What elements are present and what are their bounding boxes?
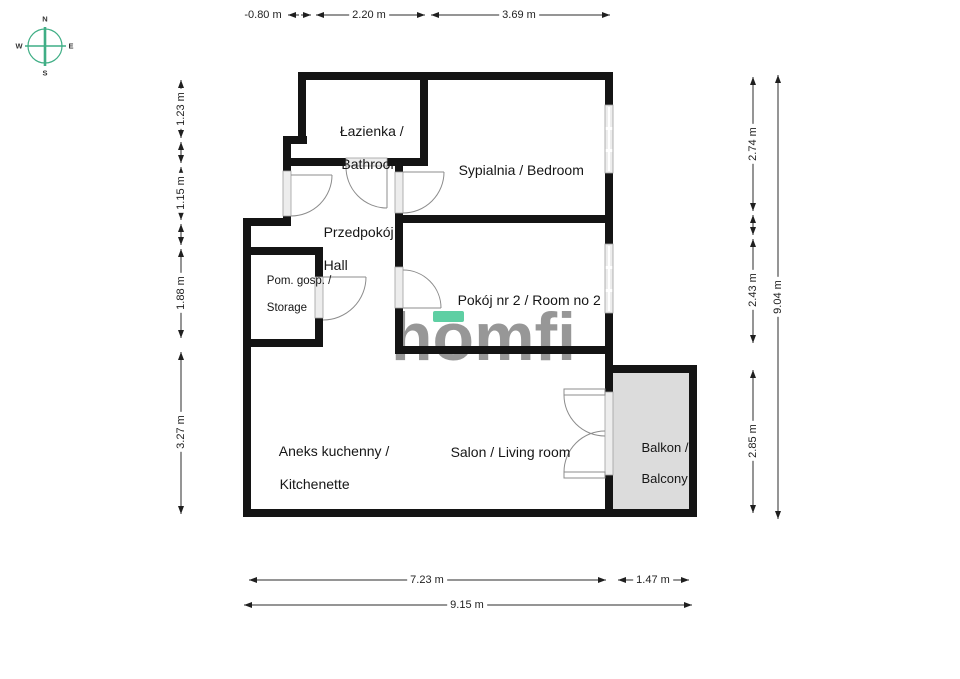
wall-segment	[243, 218, 251, 517]
wall-segment	[395, 215, 613, 223]
dim-left-bathroom: 1.23 m	[175, 89, 187, 129]
dim-top-bathroom: 2.20 m	[349, 9, 389, 21]
door-leaf	[564, 389, 605, 395]
wall-segment	[607, 365, 697, 373]
dim-left-storage: 1.88 m	[175, 273, 187, 313]
window	[605, 105, 613, 173]
dim-right-room2: 2.43 m	[747, 270, 759, 310]
dim-right-total: 9.04 m	[772, 277, 784, 317]
dim-right-balcony: 2.85 m	[747, 421, 759, 461]
room-label-kitchenette: Aneks kuchenny / Kitchenette	[264, 426, 389, 510]
compass-east-label: E	[68, 42, 73, 51]
wall-segment	[605, 313, 613, 392]
compass-south-label: S	[42, 69, 47, 78]
wall-segment	[605, 173, 613, 244]
dim-left-entry: 1.15 m	[175, 173, 187, 213]
wall-segment	[243, 339, 323, 347]
door-frame	[283, 171, 291, 216]
wall-segment	[283, 136, 291, 172]
floor-plan-drawing	[0, 0, 960, 679]
wall-segment	[605, 72, 613, 105]
dim-bottom-balcony: 1.47 m	[633, 574, 673, 586]
room-label-bedroom: Sypialnia / Bedroom	[443, 145, 584, 195]
dim-bottom-total: 9.15 m	[447, 599, 487, 611]
room-label-room2: Pokój nr 2 / Room no 2	[442, 275, 601, 325]
wall-segment	[605, 475, 613, 511]
dim-top-offset: -0.80 m	[241, 9, 284, 21]
door-swing-arc	[403, 270, 441, 308]
wall-segment	[689, 365, 697, 517]
wall-segment	[395, 346, 613, 354]
dim-top-bedroom: 3.69 m	[499, 9, 539, 21]
room-label-bathroom: Łazienka / Bathroom	[300, 106, 428, 190]
dim-bottom-living: 7.23 m	[407, 574, 447, 586]
room-label-living: Salon / Living room	[435, 427, 570, 477]
compass-north-label: N	[42, 15, 47, 24]
wall-segment	[243, 509, 697, 517]
door-frame	[605, 392, 613, 475]
compass-west-label: W	[15, 42, 22, 51]
floor-plan-canvas: homfi	[0, 0, 960, 679]
room-label-balcony: Balkon / Balcony	[627, 424, 688, 502]
room-label-storage: Pom. gosp. / Storage	[254, 261, 331, 330]
window	[605, 244, 613, 313]
wall-segment	[298, 72, 613, 80]
dim-left-kitchen: 3.27 m	[175, 412, 187, 452]
compass-rose	[25, 27, 66, 66]
dim-right-bedroom: 2.74 m	[747, 124, 759, 164]
